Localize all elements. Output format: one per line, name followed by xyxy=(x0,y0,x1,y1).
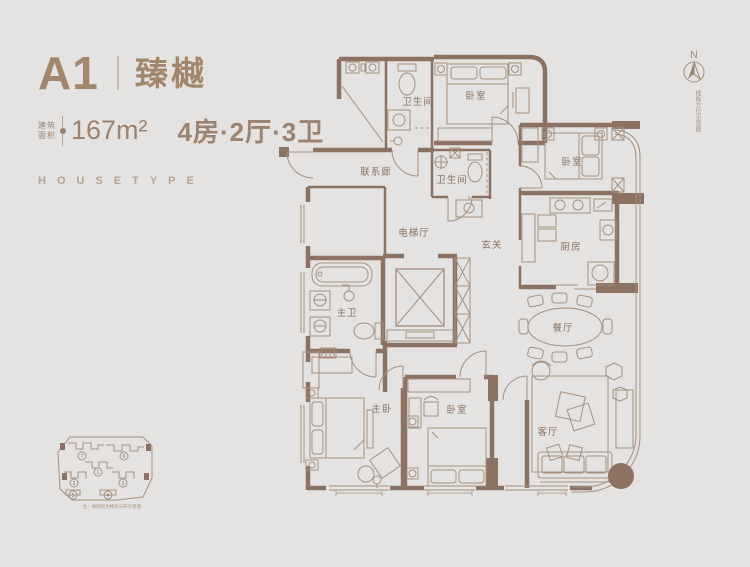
site-plan-caption: 注：本图仅为楼栋分布示意图 xyxy=(83,503,142,510)
layout-spec: 4房·2厅·3卫 xyxy=(178,112,325,149)
room-label-kitchen: 厨房 xyxy=(560,241,581,253)
site-number-0: 7 xyxy=(81,454,84,460)
elevator-shaft xyxy=(396,269,444,338)
room-label-elevator-hall: 电梯厅 xyxy=(398,227,430,239)
master-bed xyxy=(306,388,400,488)
compass-needle-filled xyxy=(688,62,694,79)
unit-name: 臻樾 xyxy=(135,57,207,90)
area-divider-line xyxy=(62,116,63,146)
window-duct-boxes xyxy=(612,128,624,192)
site-number-5: 5 xyxy=(72,493,75,499)
bed-right xyxy=(542,128,607,179)
page: A1 臻樾 建筑 面积 167m² 4房·2厅·3卫 HOUSETYPE xyxy=(0,0,750,562)
unit-code: A1 xyxy=(38,50,99,96)
site-number-1: 6 xyxy=(123,454,126,460)
room-label-bedroom-right: 卧室 xyxy=(561,156,582,168)
compass-note: 楼栋方位示意图 xyxy=(694,89,701,133)
room-label-bath-top: 卫生间 xyxy=(402,96,434,108)
area-row: 建筑 面积 167m² 4房·2厅·3卫 xyxy=(38,112,324,149)
master-bath-fixtures xyxy=(310,263,383,339)
header-block: A1 臻樾 建筑 面积 167m² 4房·2厅·3卫 HOUSETYPE xyxy=(38,50,324,187)
area-value: 167m² xyxy=(71,115,148,146)
site-number-4: 3 xyxy=(122,481,125,487)
plant-circle xyxy=(608,463,634,489)
title-row: A1 臻樾 xyxy=(38,50,324,96)
washer-dryer-icons xyxy=(342,62,383,142)
room-label-dining: 餐厅 xyxy=(552,322,573,334)
room-label-master-bedroom: 主卧 xyxy=(371,403,392,415)
area-meta-label: 建筑 面积 xyxy=(38,121,56,141)
living-furniture xyxy=(532,361,627,482)
compass-n-label: N xyxy=(690,50,697,61)
housetype-label: HOUSETYPE xyxy=(38,175,324,187)
room-label-corridor: 联系廊 xyxy=(360,166,392,178)
room-label-bedroom-top: 卧室 xyxy=(465,90,486,102)
site-number-3: 2 xyxy=(73,481,76,487)
room-label-bedroom-bottom: 卧室 xyxy=(446,404,467,416)
title-divider xyxy=(117,56,119,90)
room-label-foyer: 玄关 xyxy=(481,239,502,251)
site-number-2: 1 xyxy=(97,470,100,476)
room-label-bath-middle: 卫生间 xyxy=(436,174,468,186)
compass: N 楼栋方位示意图 xyxy=(684,50,704,133)
site-plan: 7 6 1 2 3 5 4 注：本图仅为楼栋分布示意图 xyxy=(58,437,152,510)
area-meta-line1: 建筑 xyxy=(38,121,56,130)
room-label-living: 客厅 xyxy=(537,426,558,438)
dimension-ticks xyxy=(336,490,566,496)
area-meta-line2: 面积 xyxy=(38,131,56,140)
site-number-6: 4 xyxy=(107,493,110,499)
site-boundary xyxy=(58,437,152,500)
compass-needle-outline xyxy=(694,62,700,79)
room-label-master-bath: 主卫 xyxy=(336,307,357,319)
